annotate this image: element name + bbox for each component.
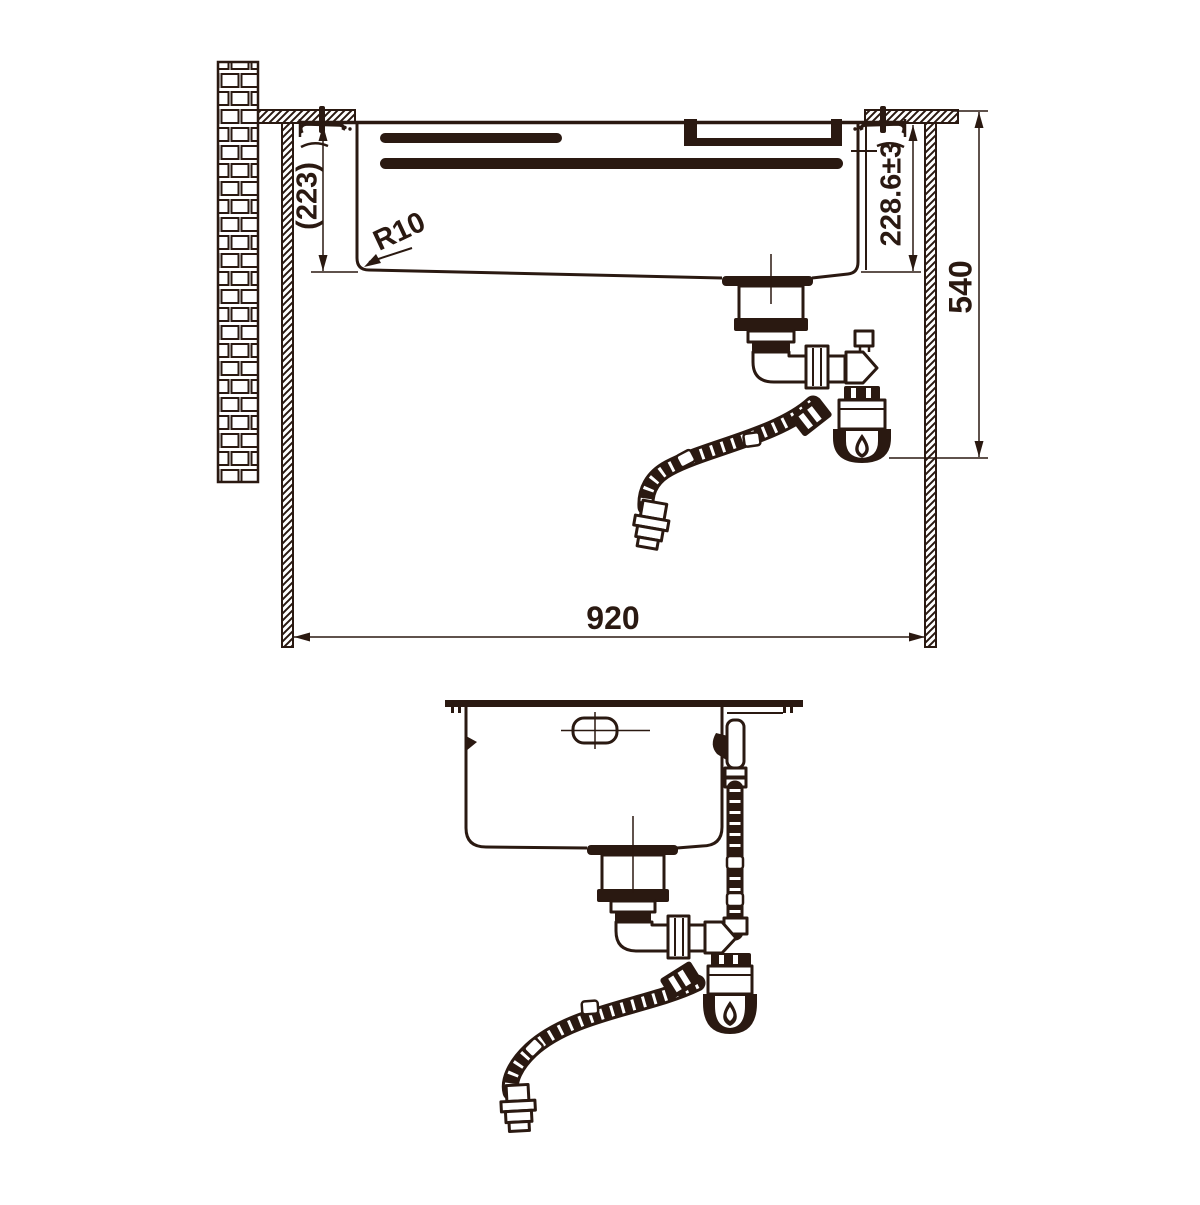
dim-2286: 228.6±3 <box>861 125 921 272</box>
pipe-nut-front <box>806 346 828 388</box>
sink-installation-drawing: (223) R10 228.6±3 540 <box>0 0 1200 1200</box>
hose-outlet-front <box>630 499 671 550</box>
overflow-pipe <box>713 720 747 934</box>
technical-drawing-canvas: (223) R10 228.6±3 540 <box>0 0 1200 1200</box>
dim-2286-label: 228.6±3 <box>876 142 908 247</box>
drain-hose-side <box>510 983 697 1092</box>
side-view <box>445 700 803 1132</box>
dim-r10-label: R10 <box>369 206 431 257</box>
dim-920-label: 920 <box>586 600 639 636</box>
hose-outlet-side <box>500 1084 536 1132</box>
bottle-trap-side <box>703 953 757 1034</box>
dim-540-label: 540 <box>942 260 978 313</box>
groove-bar-long <box>380 158 843 169</box>
pipe-junction-front <box>846 352 877 383</box>
dimensions: (223) R10 228.6±3 540 <box>292 111 988 642</box>
hose-nut-front <box>790 396 833 437</box>
drain-hose-front <box>646 404 813 507</box>
front-view <box>218 62 958 647</box>
dim-920: 920 <box>294 600 925 642</box>
cabinet-panel-right <box>925 123 936 647</box>
bottle-trap-front <box>833 386 891 463</box>
dim-223-label: (223) <box>292 162 324 230</box>
dishwasher-stub-front <box>855 331 873 346</box>
brick-wall <box>218 62 258 482</box>
dim-r10: R10 <box>364 206 430 267</box>
sink-bowl-front <box>357 123 858 278</box>
waste-strainer-front <box>722 276 813 352</box>
overflow-slot <box>561 712 650 749</box>
pipe-nut-side <box>668 916 689 958</box>
worktop-side <box>445 700 803 707</box>
groove-bar-short <box>380 133 562 143</box>
clip-bracket-side <box>466 736 477 751</box>
